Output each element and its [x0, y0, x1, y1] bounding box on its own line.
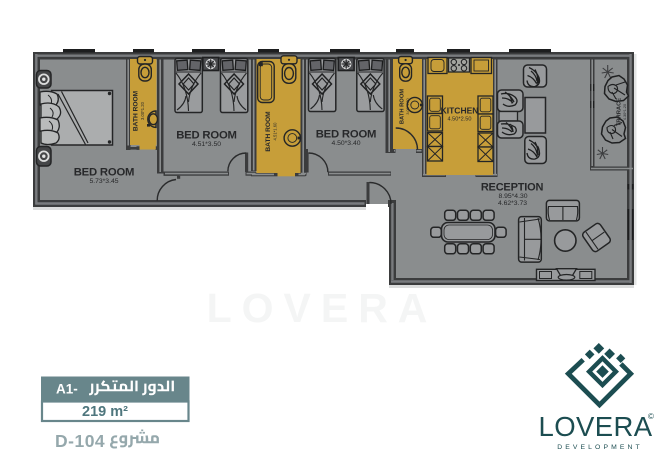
svg-text:4.51*3.50: 4.51*3.50 — [192, 141, 221, 148]
svg-text:219 m²: 219 m² — [82, 404, 128, 420]
svg-text:4.62*3.73: 4.62*3.73 — [498, 200, 527, 207]
svg-text:4.50*2.50: 4.50*2.50 — [448, 117, 472, 123]
svg-text:4.30*1.20: 4.30*1.20 — [623, 104, 627, 120]
svg-text:LOVERA: LOVERA — [207, 285, 438, 331]
svg-text:3.00*1.20: 3.00*1.20 — [140, 101, 145, 120]
svg-text:A1-: A1- — [56, 382, 78, 397]
svg-text:5.73*3.45: 5.73*3.45 — [89, 178, 118, 185]
svg-text:4.51*1.60: 4.51*1.60 — [273, 122, 278, 141]
svg-text:BED ROOM: BED ROOM — [316, 129, 377, 141]
svg-text:8.95*4.30: 8.95*4.30 — [498, 193, 527, 200]
svg-text:4.50*3.40: 4.50*3.40 — [331, 140, 360, 147]
svg-text:BED ROOM: BED ROOM — [74, 167, 135, 179]
svg-text:©: © — [648, 412, 654, 421]
svg-text:BATH ROOM: BATH ROOM — [265, 111, 272, 152]
svg-text:3.00*1.20: 3.00*1.20 — [406, 98, 410, 114]
svg-text:RECEPTION: RECEPTION — [481, 182, 544, 194]
svg-text:BATH ROOM: BATH ROOM — [400, 89, 406, 124]
svg-text:TRRRACE: TRRRACE — [617, 98, 623, 126]
svg-text:KITCHEN: KITCHEN — [441, 106, 479, 116]
svg-text:D-104: D-104 — [55, 431, 105, 451]
svg-text:BATH ROOM: BATH ROOM — [133, 90, 140, 131]
svg-text:LOVERA: LOVERA — [539, 411, 653, 442]
svg-text:BED ROOM: BED ROOM — [176, 130, 237, 142]
svg-text:DEVELOPMENT: DEVELOPMENT — [557, 444, 642, 451]
